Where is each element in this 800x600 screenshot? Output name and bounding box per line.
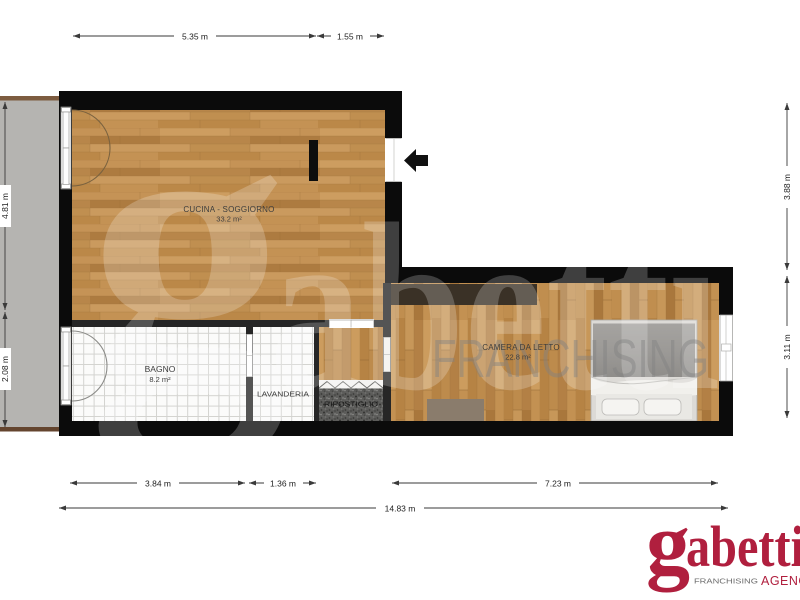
svg-text:RIPOSTIGLIO: RIPOSTIGLIO [324, 402, 379, 409]
svg-text:FRANCHISING: FRANCHISING [694, 577, 758, 586]
svg-text:FRANCHISING: FRANCHISING [432, 329, 709, 389]
svg-text:AGENCY: AGENCY [761, 574, 800, 588]
svg-text:7.23 m: 7.23 m [545, 479, 571, 489]
svg-text:8.2 m²: 8.2 m² [149, 375, 171, 384]
svg-text:abetti: abetti [686, 514, 800, 579]
svg-text:4.81 m: 4.81 m [0, 193, 10, 219]
svg-text:LAVANDERIA: LAVANDERIA [257, 390, 309, 399]
svg-text:CUCINA - SOGGIORNO: CUCINA - SOGGIORNO [183, 205, 274, 214]
svg-text:2.08 m: 2.08 m [0, 356, 10, 382]
svg-text:22.8 m²: 22.8 m² [505, 353, 531, 362]
svg-text:CAMERA DA LETTO: CAMERA DA LETTO [482, 343, 560, 352]
svg-text:BAGNO: BAGNO [145, 364, 176, 374]
svg-text:g: g [646, 496, 690, 593]
svg-text:3.11 m: 3.11 m [782, 334, 792, 359]
svg-text:abetti: abetti [270, 174, 720, 440]
svg-text:1.36 m: 1.36 m [270, 479, 296, 489]
svg-text:1.55 m: 1.55 m [337, 32, 363, 42]
svg-text:g: g [88, 24, 288, 474]
svg-text:5.35 m: 5.35 m [182, 32, 208, 42]
svg-text:3.84 m: 3.84 m [145, 479, 171, 489]
svg-text:14.83 m: 14.83 m [385, 504, 416, 514]
svg-text:3.88 m: 3.88 m [782, 174, 792, 200]
svg-text:33.2 m²: 33.2 m² [216, 215, 242, 224]
